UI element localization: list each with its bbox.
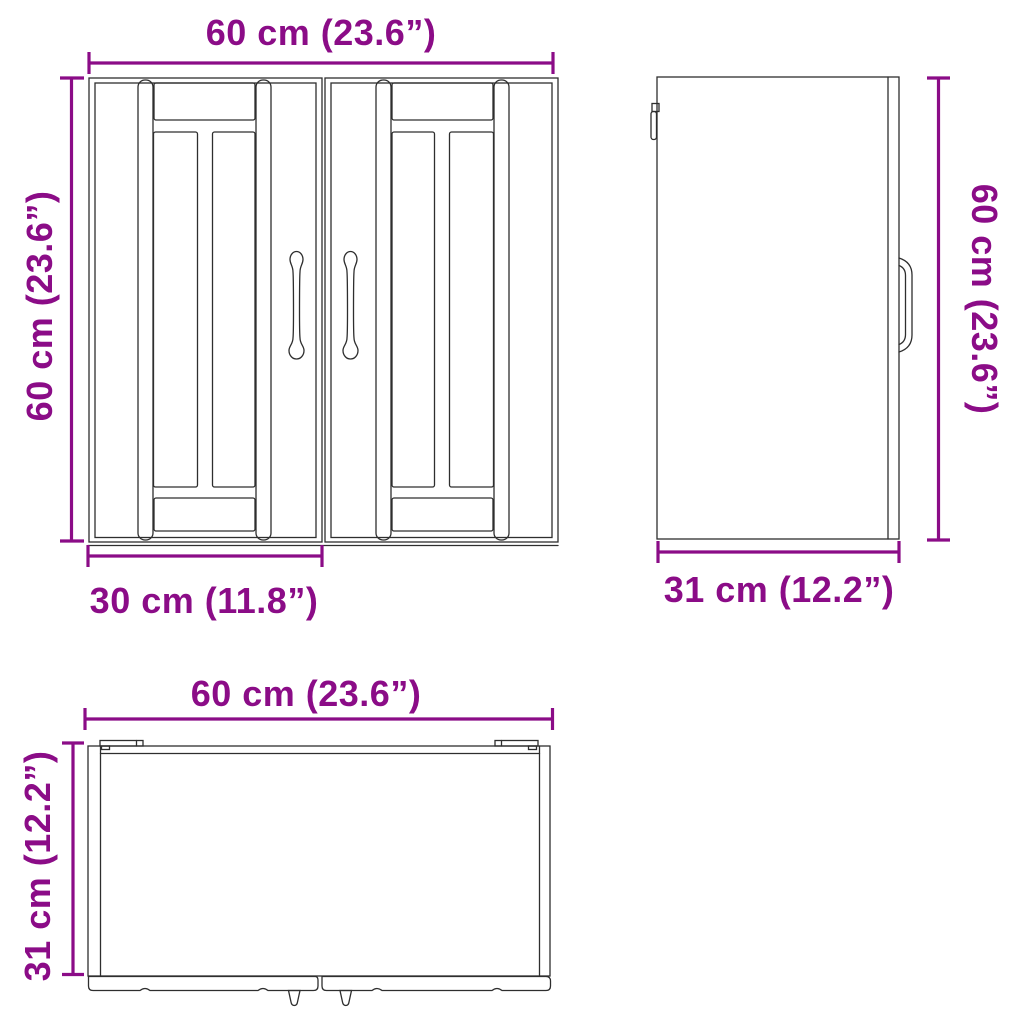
top-width-dimension-label: 60 cm (23.6”)	[191, 673, 422, 715]
top-body-outline	[88, 746, 550, 976]
side-view-drawing	[651, 77, 950, 563]
side-height-dimension-label: 60 cm (23.6”)	[963, 184, 1005, 415]
product-dimensions-diagram: 60 cm (23.6”) 60 cm (23.6”) 30 cm (11.8”…	[0, 0, 1024, 1024]
front-height-dimension-label: 60 cm (23.6”)	[19, 191, 61, 422]
wall-bracket-right	[495, 741, 538, 750]
front-door-right	[325, 78, 558, 542]
glass-pane-top	[154, 83, 255, 120]
door-strip-right	[322, 977, 551, 991]
door-bottom-panel	[154, 498, 255, 531]
side-door-handle	[899, 258, 912, 352]
front-width-dimension-line	[89, 52, 553, 74]
front-height-dimension-line	[60, 78, 84, 541]
side-body-outline	[657, 77, 899, 539]
front-width-dimension-label: 60 cm (23.6”)	[206, 12, 437, 54]
top-door-handle-left	[289, 991, 301, 1006]
door-strip-left	[89, 977, 319, 991]
top-view-drawing	[62, 708, 553, 1006]
glass-pane-left	[154, 132, 198, 487]
wall-bracket	[651, 104, 659, 140]
top-depth-dimension-label: 31 cm (12.2”)	[17, 751, 59, 982]
door-inner-edge	[95, 83, 316, 538]
side-depth-dimension-label: 31 cm (12.2”)	[664, 569, 895, 611]
glass-pane-right	[213, 132, 256, 487]
side-depth-dimension-line	[658, 541, 899, 563]
front-door-left	[89, 78, 322, 542]
top-door-handle-right	[340, 991, 352, 1006]
top-depth-dimension-line	[62, 743, 84, 975]
front-door-width-dimension-line	[88, 545, 322, 567]
door-outer-edge	[89, 78, 322, 542]
front-door-width-dimension-label: 30 cm (11.8”)	[90, 580, 319, 622]
door-handle	[289, 252, 304, 360]
side-height-dimension-line	[927, 78, 950, 540]
door-stile-right	[256, 80, 271, 540]
diagram-line-art	[0, 0, 1024, 1024]
door-stile-left	[138, 80, 153, 540]
wall-bracket-left	[100, 741, 143, 750]
front-view-drawing	[60, 52, 558, 567]
